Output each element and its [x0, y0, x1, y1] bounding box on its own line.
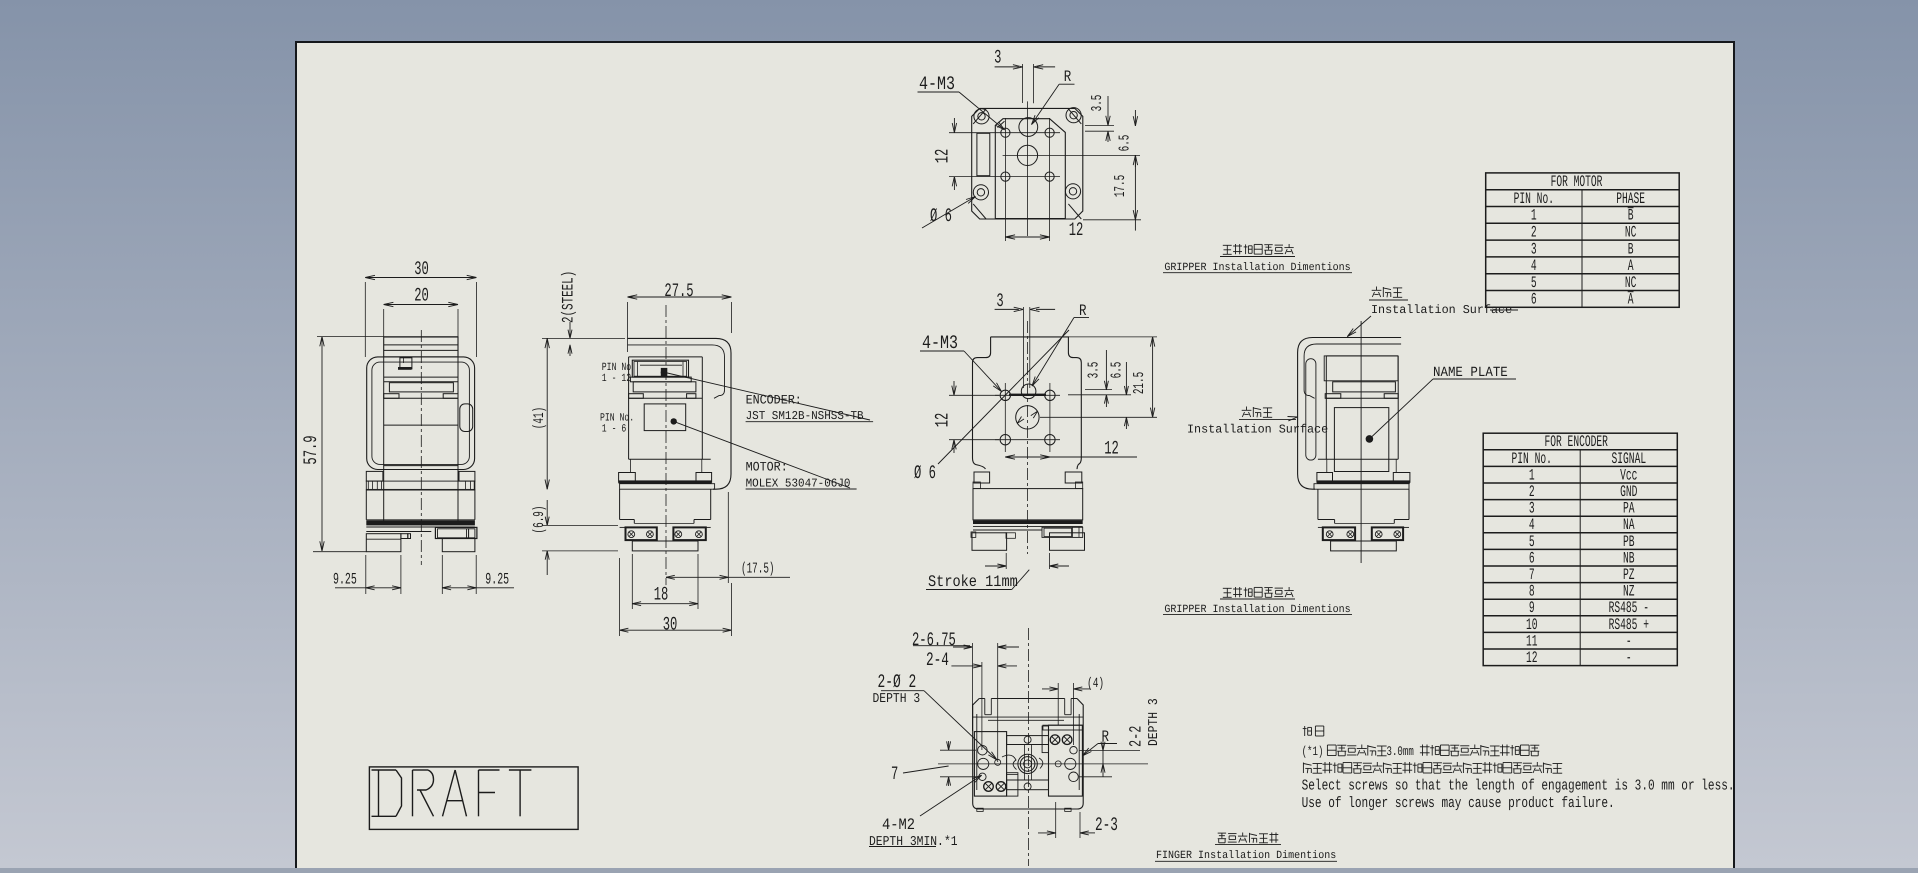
svg-text:3.5: 3.5 [1086, 362, 1103, 379]
svg-text:9: 9 [1529, 599, 1535, 617]
svg-text:-: - [1626, 649, 1632, 667]
svg-text:SIGNAL: SIGNAL [1612, 450, 1647, 468]
svg-text:GRIPPER Installation Dimention: GRIPPER Installation Dimentions [1164, 262, 1350, 274]
svg-text:A: A [1628, 291, 1634, 309]
svg-text:5: 5 [1529, 533, 1535, 551]
svg-text:3: 3 [1529, 500, 1535, 518]
svg-text:7: 7 [891, 763, 898, 785]
svg-text:21.5: 21.5 [1131, 372, 1148, 394]
svg-text:6: 6 [1531, 291, 1537, 309]
svg-text:7: 7 [1529, 566, 1535, 584]
svg-text:PB: PB [1623, 533, 1635, 551]
svg-text:R: R [1064, 68, 1072, 86]
svg-text:DEPTH 3MIN.: DEPTH 3MIN. [869, 835, 944, 850]
svg-text:1 - 12: 1 - 12 [602, 373, 631, 385]
svg-text:DEPTH 3: DEPTH 3 [1147, 698, 1162, 746]
svg-text:10: 10 [1526, 616, 1538, 634]
svg-text:RS485 +: RS485 + [1609, 616, 1649, 634]
svg-text:5: 5 [1531, 274, 1537, 292]
svg-text:FINGER Installation Dimentions: FINGER Installation Dimentions [1156, 850, 1336, 862]
svg-text:1: 1 [1531, 207, 1537, 225]
svg-text:PIN No.: PIN No. [1512, 450, 1552, 468]
svg-text:RS485 -: RS485 - [1609, 599, 1649, 617]
svg-text:4-M2: 4-M2 [882, 816, 915, 834]
svg-text:4: 4 [1531, 257, 1537, 275]
svg-text:(41): (41) [531, 407, 548, 429]
svg-text:(4): (4) [1087, 676, 1104, 692]
svg-text:12: 12 [1104, 438, 1119, 460]
svg-text:4: 4 [1529, 516, 1535, 534]
svg-text:DEPTH 3: DEPTH 3 [873, 692, 921, 707]
svg-text:57.9: 57.9 [300, 435, 322, 464]
svg-text:NC: NC [1625, 224, 1637, 242]
svg-text:JST SM12B-NSHSS-TB: JST SM12B-NSHSS-TB [746, 409, 864, 423]
svg-text:Stroke 11mm: Stroke 11mm [928, 573, 1018, 591]
svg-text:*1: *1 [944, 835, 958, 850]
svg-text:1 - 6: 1 - 6 [602, 424, 626, 436]
svg-text:12: 12 [932, 413, 954, 428]
svg-text:NB: NB [1623, 549, 1635, 567]
svg-text:PZ: PZ [1623, 566, 1635, 584]
svg-text:Select screws so that the leng: Select screws so that the length of enga… [1302, 778, 1735, 795]
svg-text:11: 11 [1526, 632, 1538, 650]
svg-text:20: 20 [414, 285, 429, 307]
svg-text:-: - [1626, 632, 1632, 650]
svg-text:GND: GND [1620, 483, 1637, 501]
svg-text:NA: NA [1623, 516, 1635, 534]
svg-text:3: 3 [994, 47, 1001, 69]
svg-text:27.5: 27.5 [664, 280, 693, 302]
svg-text:NC: NC [1625, 274, 1637, 292]
svg-text:30: 30 [414, 258, 429, 280]
svg-text:6.5: 6.5 [1117, 135, 1134, 152]
svg-text:17.5: 17.5 [1112, 175, 1129, 197]
svg-text:12: 12 [1069, 219, 1084, 241]
svg-text:B: B [1628, 240, 1634, 258]
svg-text:30: 30 [663, 614, 678, 636]
svg-text:8: 8 [1529, 583, 1535, 601]
svg-text:3.5: 3.5 [1089, 95, 1106, 112]
svg-text:3: 3 [996, 290, 1003, 312]
svg-text:3: 3 [1531, 240, 1537, 258]
svg-text:Vcc: Vcc [1620, 466, 1637, 484]
svg-text:2: 2 [1531, 224, 1537, 242]
svg-text:Ø 6: Ø 6 [914, 462, 936, 484]
svg-text:12: 12 [932, 149, 954, 164]
svg-text:FOR ENCODER: FOR ENCODER [1545, 433, 1609, 451]
svg-text:3.0mm: 3.0mm [1387, 744, 1414, 759]
svg-text:(*1): (*1) [1302, 744, 1324, 759]
svg-text:9.25: 9.25 [485, 571, 509, 589]
svg-text:2-6.75: 2-6.75 [912, 629, 956, 651]
svg-text:B: B [1628, 207, 1634, 225]
svg-text:2: 2 [1529, 483, 1535, 501]
svg-text:(17.5): (17.5) [741, 561, 774, 578]
svg-text:MOLEX 53047-06J0: MOLEX 53047-06J0 [746, 477, 851, 491]
svg-text:NZ: NZ [1623, 583, 1635, 601]
svg-text:PIN No.: PIN No. [1514, 190, 1554, 208]
svg-text:PA: PA [1623, 500, 1635, 518]
svg-text:FOR MOTOR: FOR MOTOR [1551, 173, 1603, 191]
svg-text:12: 12 [1526, 649, 1538, 667]
svg-text:2-Ø 2: 2-Ø 2 [878, 671, 917, 693]
svg-text:2(STEEL): 2(STEEL) [560, 271, 578, 323]
svg-text:2-2: 2-2 [1128, 726, 1147, 747]
svg-text:2-4: 2-4 [926, 649, 949, 671]
svg-text:Installation Surface: Installation Surface [1187, 423, 1328, 437]
svg-text:6.5: 6.5 [1109, 362, 1126, 379]
svg-text:2-3: 2-3 [1095, 814, 1118, 836]
svg-text:6: 6 [1529, 549, 1535, 567]
svg-text:18: 18 [654, 584, 669, 606]
svg-text:A: A [1628, 257, 1634, 275]
svg-text:Ø 6: Ø 6 [930, 205, 952, 227]
svg-text:PHASE: PHASE [1616, 190, 1645, 208]
svg-text:9.25: 9.25 [333, 571, 357, 589]
svg-text:ENCODER:: ENCODER: [746, 393, 802, 408]
svg-text:Use of longer screws may cause: Use of longer screws may cause product f… [1302, 795, 1615, 812]
svg-text:1: 1 [1529, 466, 1535, 484]
